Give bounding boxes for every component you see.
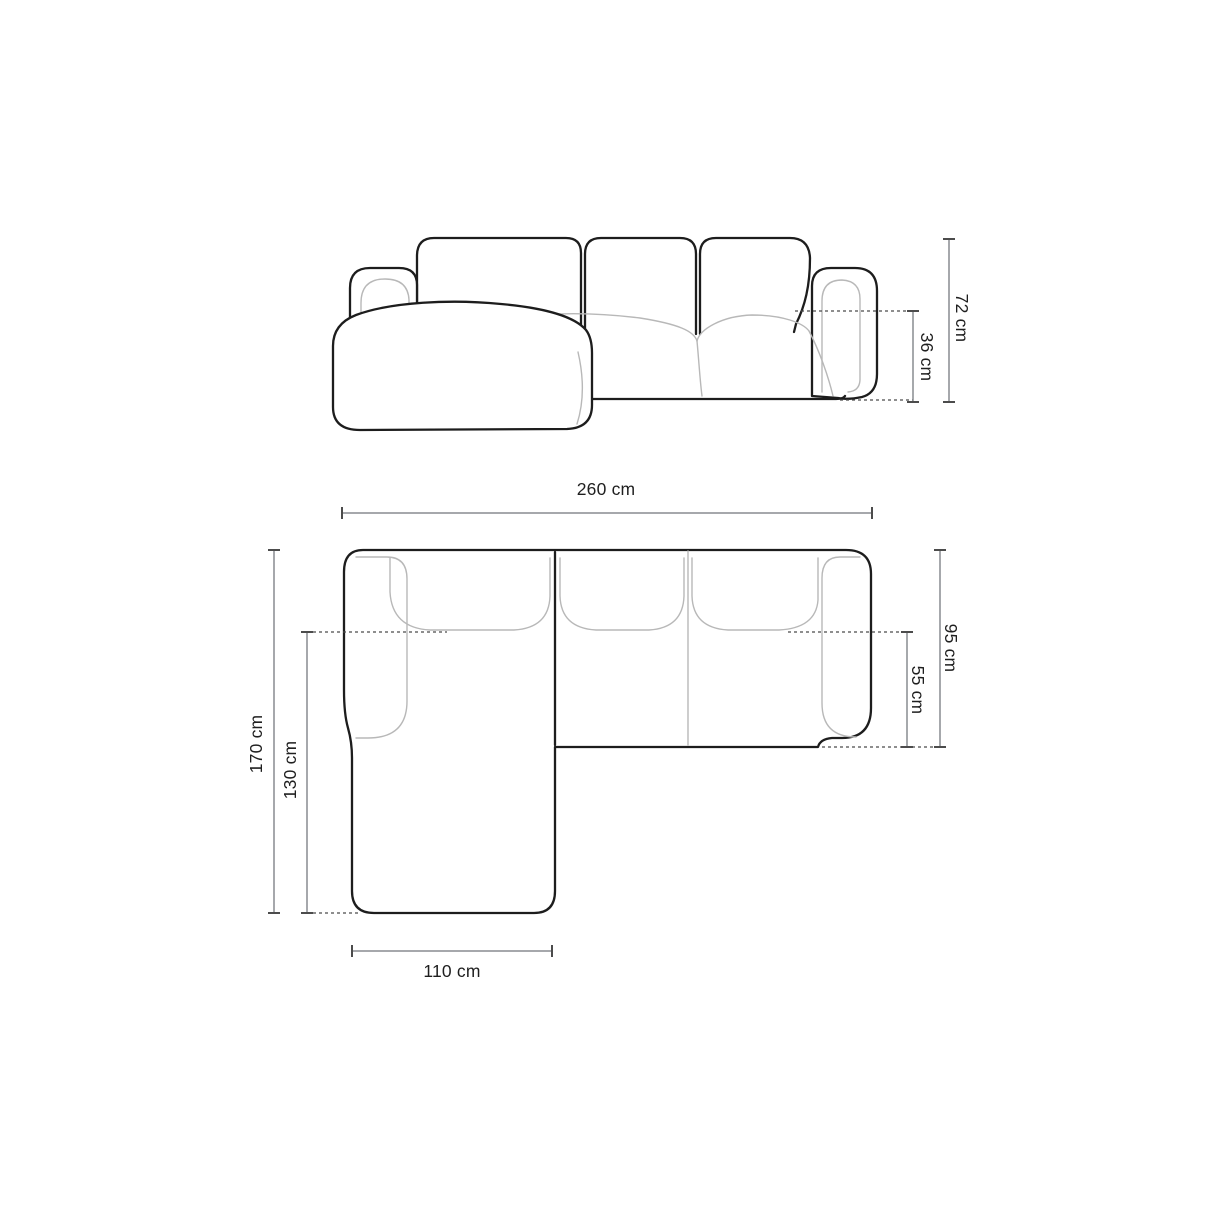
plan-sofa-outline [344,550,871,913]
dim-label-seat-height: 36 cm [917,333,937,382]
plan-view [307,550,935,913]
dim-label-total-depth: 170 cm [246,715,266,774]
elevation-front-bottom-edge [592,396,845,399]
elevation-chaise-cushion [333,302,592,430]
elevation-view [333,238,913,430]
sofa-dimensions-diagram: 72 cm 36 cm [0,0,1214,1214]
elevation-back-cushion-right [700,238,810,334]
dim-label-body-depth: 95 cm [941,624,961,673]
sofa-dimensions-page: 72 cm 36 cm [0,0,1214,1214]
dim-label-total-height: 72 cm [952,294,972,343]
dim-label-chaise-width: 110 cm [423,961,480,981]
dim-label-seat-depth: 55 cm [908,666,928,715]
elevation-dimensions: 72 cm 36 cm [907,239,972,402]
dim-label-chaise-length: 130 cm [280,741,300,800]
elevation-back-cushion-middle [585,238,696,334]
dim-label-total-width: 260 cm [577,479,636,499]
elevation-seat-divider-line [697,341,702,396]
